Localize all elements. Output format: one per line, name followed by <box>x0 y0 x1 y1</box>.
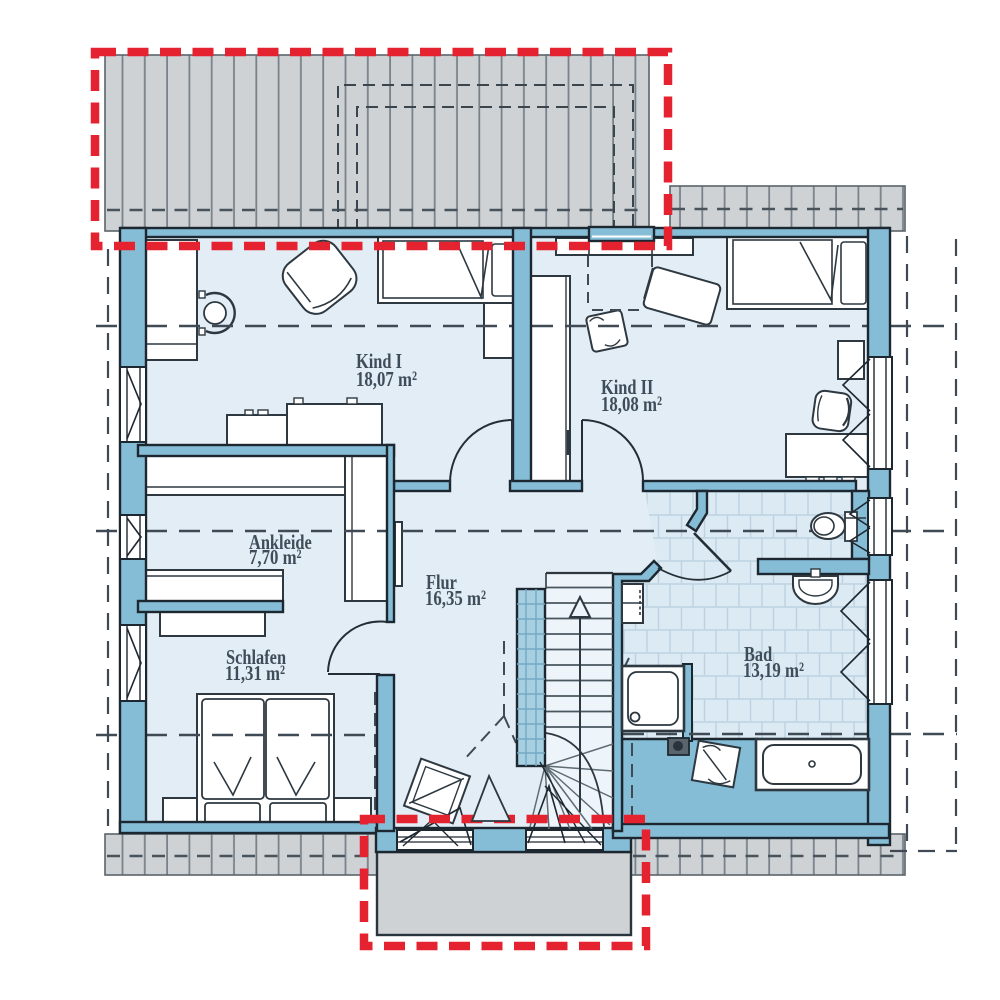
svg-text:7,70 m²: 7,70 m² <box>249 546 302 569</box>
svg-text:18,07 m²: 18,07 m² <box>356 368 417 391</box>
svg-text:18,08 m²: 18,08 m² <box>601 393 662 416</box>
svg-text:16,35 m²: 16,35 m² <box>425 587 486 610</box>
svg-text:13,19 m²: 13,19 m² <box>743 659 804 682</box>
svg-text:11,31 m²: 11,31 m² <box>225 662 285 685</box>
